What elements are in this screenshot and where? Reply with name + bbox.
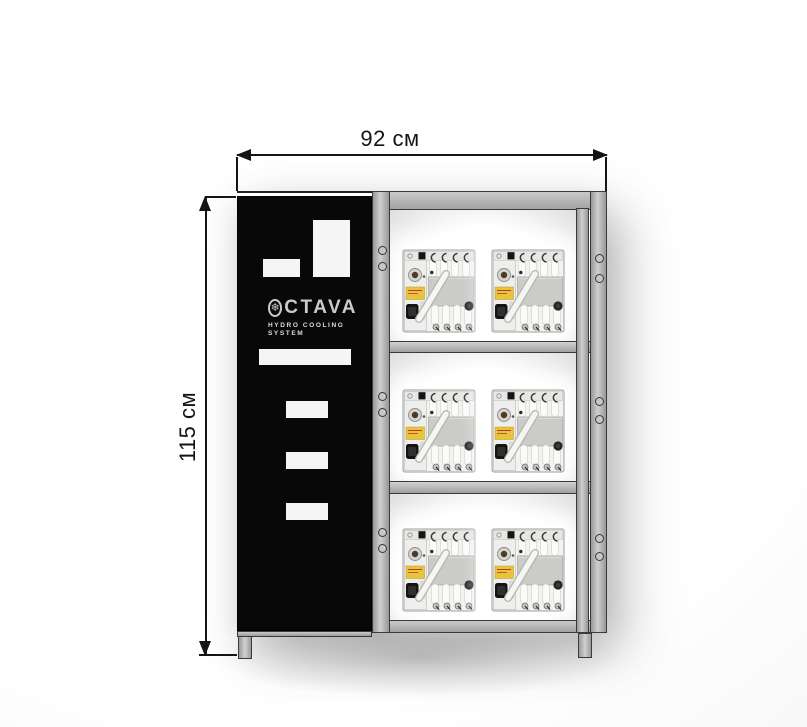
cooling-unit-graphic xyxy=(402,527,476,613)
cooling-cabinet: ❄ CTAVA HYDRO COOLING SYSTEM xyxy=(237,191,607,633)
mounting-hole xyxy=(595,254,604,263)
cooling-unit-graphic xyxy=(491,388,565,474)
mounting-hole xyxy=(595,397,604,406)
rack-shelf-divider xyxy=(372,481,607,494)
extension-line-left xyxy=(236,157,238,191)
arrowhead-up-icon xyxy=(199,196,211,211)
mounting-hole xyxy=(378,544,387,553)
door-cutout xyxy=(263,259,300,277)
cooling-unit-graphic xyxy=(491,248,565,334)
mounting-hole xyxy=(378,408,387,417)
cooling-unit xyxy=(491,388,565,474)
cooling-unit-graphic xyxy=(402,248,476,334)
rack-bottom-rail xyxy=(372,620,607,633)
arrowhead-right-icon xyxy=(593,149,608,161)
rack-shelf-divider xyxy=(372,341,607,353)
brand-name: CTAVA xyxy=(284,297,358,319)
mounting-hole xyxy=(378,392,387,401)
mounting-hole xyxy=(595,274,604,283)
brand-logo: ❄ CTAVA HYDRO COOLING SYSTEM xyxy=(268,297,358,337)
width-dimension-label: 92 см xyxy=(300,126,480,152)
height-dimension-label: 115 см xyxy=(176,385,200,469)
rack-shelf-3 xyxy=(390,494,576,620)
snowflake-icon: ❄ xyxy=(268,299,282,317)
cooling-unit xyxy=(402,527,476,613)
cooling-unit xyxy=(402,388,476,474)
cabinet-leg-right xyxy=(578,633,592,658)
brand-subtitle-line1: HYDRO COOLING xyxy=(268,322,358,329)
height-dimension-line xyxy=(205,197,207,655)
mounting-hole xyxy=(595,415,604,424)
door-cutout xyxy=(259,349,351,365)
cabinet-door: ❄ CTAVA HYDRO COOLING SYSTEM xyxy=(237,196,372,631)
cooling-unit xyxy=(491,527,565,613)
brand-logo-row: ❄ CTAVA xyxy=(268,297,358,319)
extension-line-right xyxy=(605,157,607,191)
cooling-unit xyxy=(402,248,476,334)
rack-shelf-1 xyxy=(390,210,576,341)
door-cutout xyxy=(286,503,328,520)
rack-post-inner-right xyxy=(576,208,589,633)
cooling-unit-graphic xyxy=(491,527,565,613)
cabinet-leg-left xyxy=(238,636,252,659)
mounting-hole xyxy=(595,534,604,543)
rack-top-rail xyxy=(372,191,607,210)
brand-subtitle-line2: SYSTEM xyxy=(268,330,358,337)
mounting-hole xyxy=(378,262,387,271)
door-cutout xyxy=(286,452,328,469)
rack-shelf-2 xyxy=(390,353,576,481)
cooling-unit xyxy=(491,248,565,334)
door-cutout xyxy=(286,401,328,418)
door-cutout xyxy=(313,220,350,277)
dimension-diagram: 92 см 115 см ❄ CTAVA HYDRO COOLING SYSTE… xyxy=(0,0,807,727)
mounting-hole xyxy=(595,552,604,561)
mounting-hole xyxy=(378,528,387,537)
equipment-rack xyxy=(372,191,607,633)
arrowhead-down-icon xyxy=(199,641,211,656)
cooling-unit-graphic xyxy=(402,388,476,474)
width-dimension-line xyxy=(237,154,607,156)
rack-post-left xyxy=(372,191,390,633)
door-sill xyxy=(237,631,372,637)
mounting-hole xyxy=(378,246,387,255)
arrowhead-left-icon xyxy=(236,149,251,161)
rack-post-outer-right xyxy=(590,191,607,633)
